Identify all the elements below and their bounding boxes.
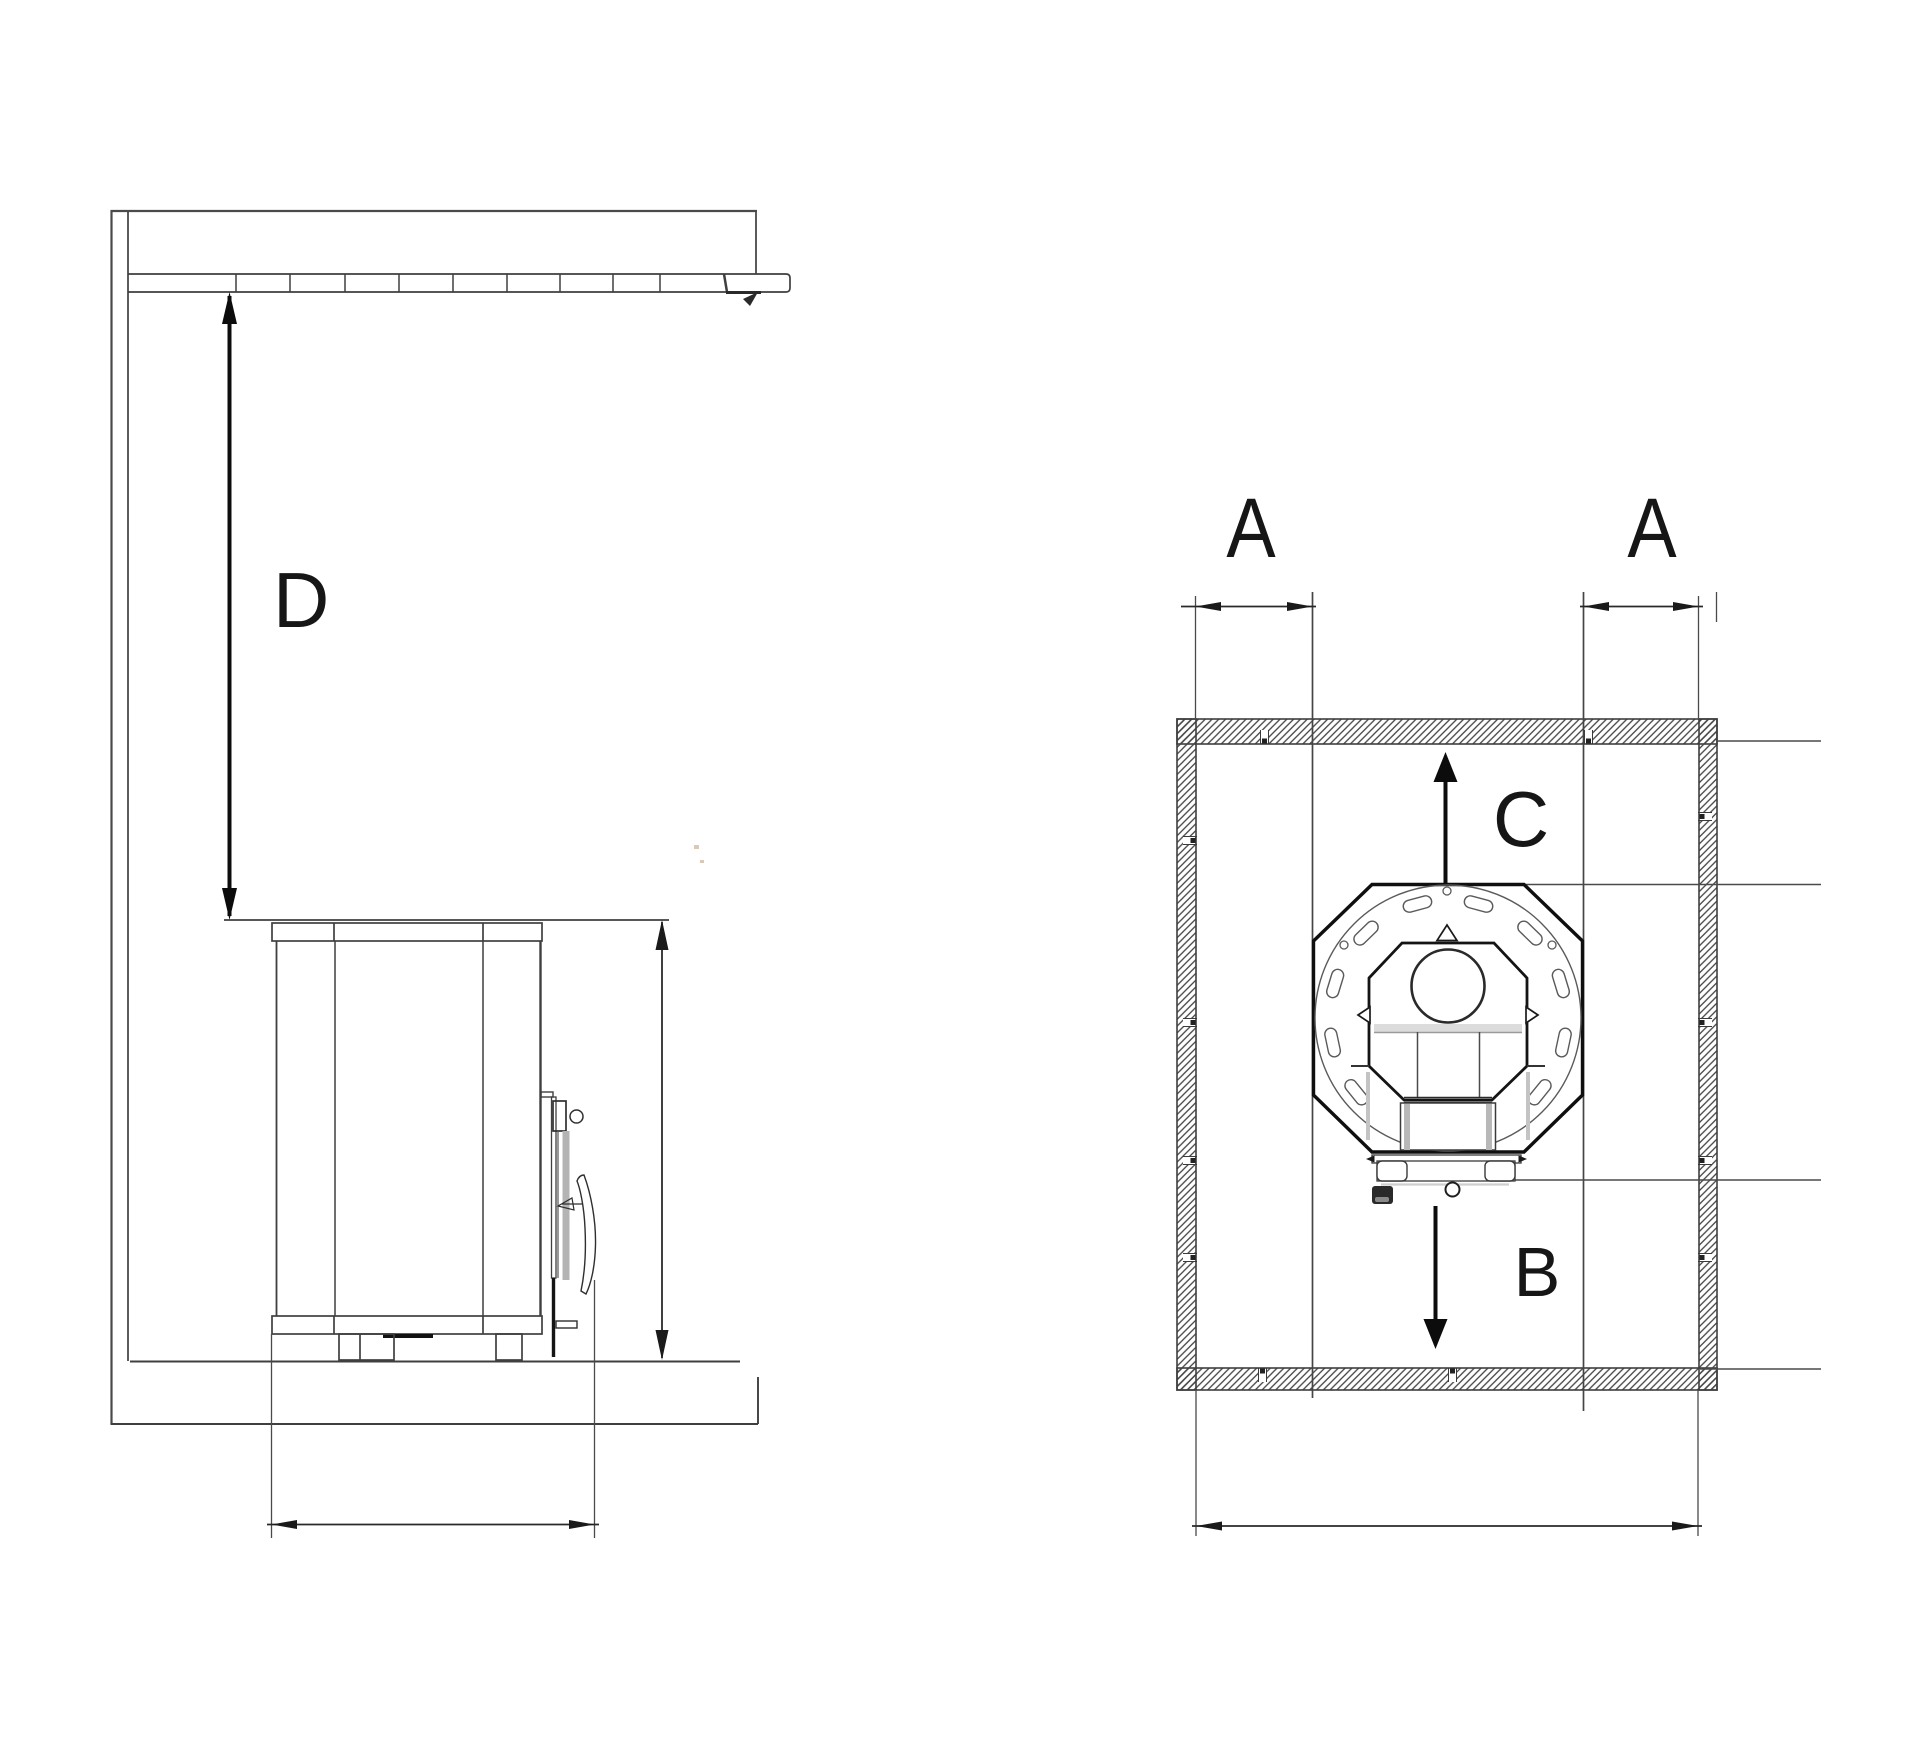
svg-text:A: A (1627, 481, 1677, 575)
svg-text:A: A (1226, 481, 1276, 575)
svg-text:B: B (1514, 1233, 1561, 1311)
svg-text:D: D (273, 556, 329, 644)
svg-text:C: C (1493, 775, 1549, 863)
